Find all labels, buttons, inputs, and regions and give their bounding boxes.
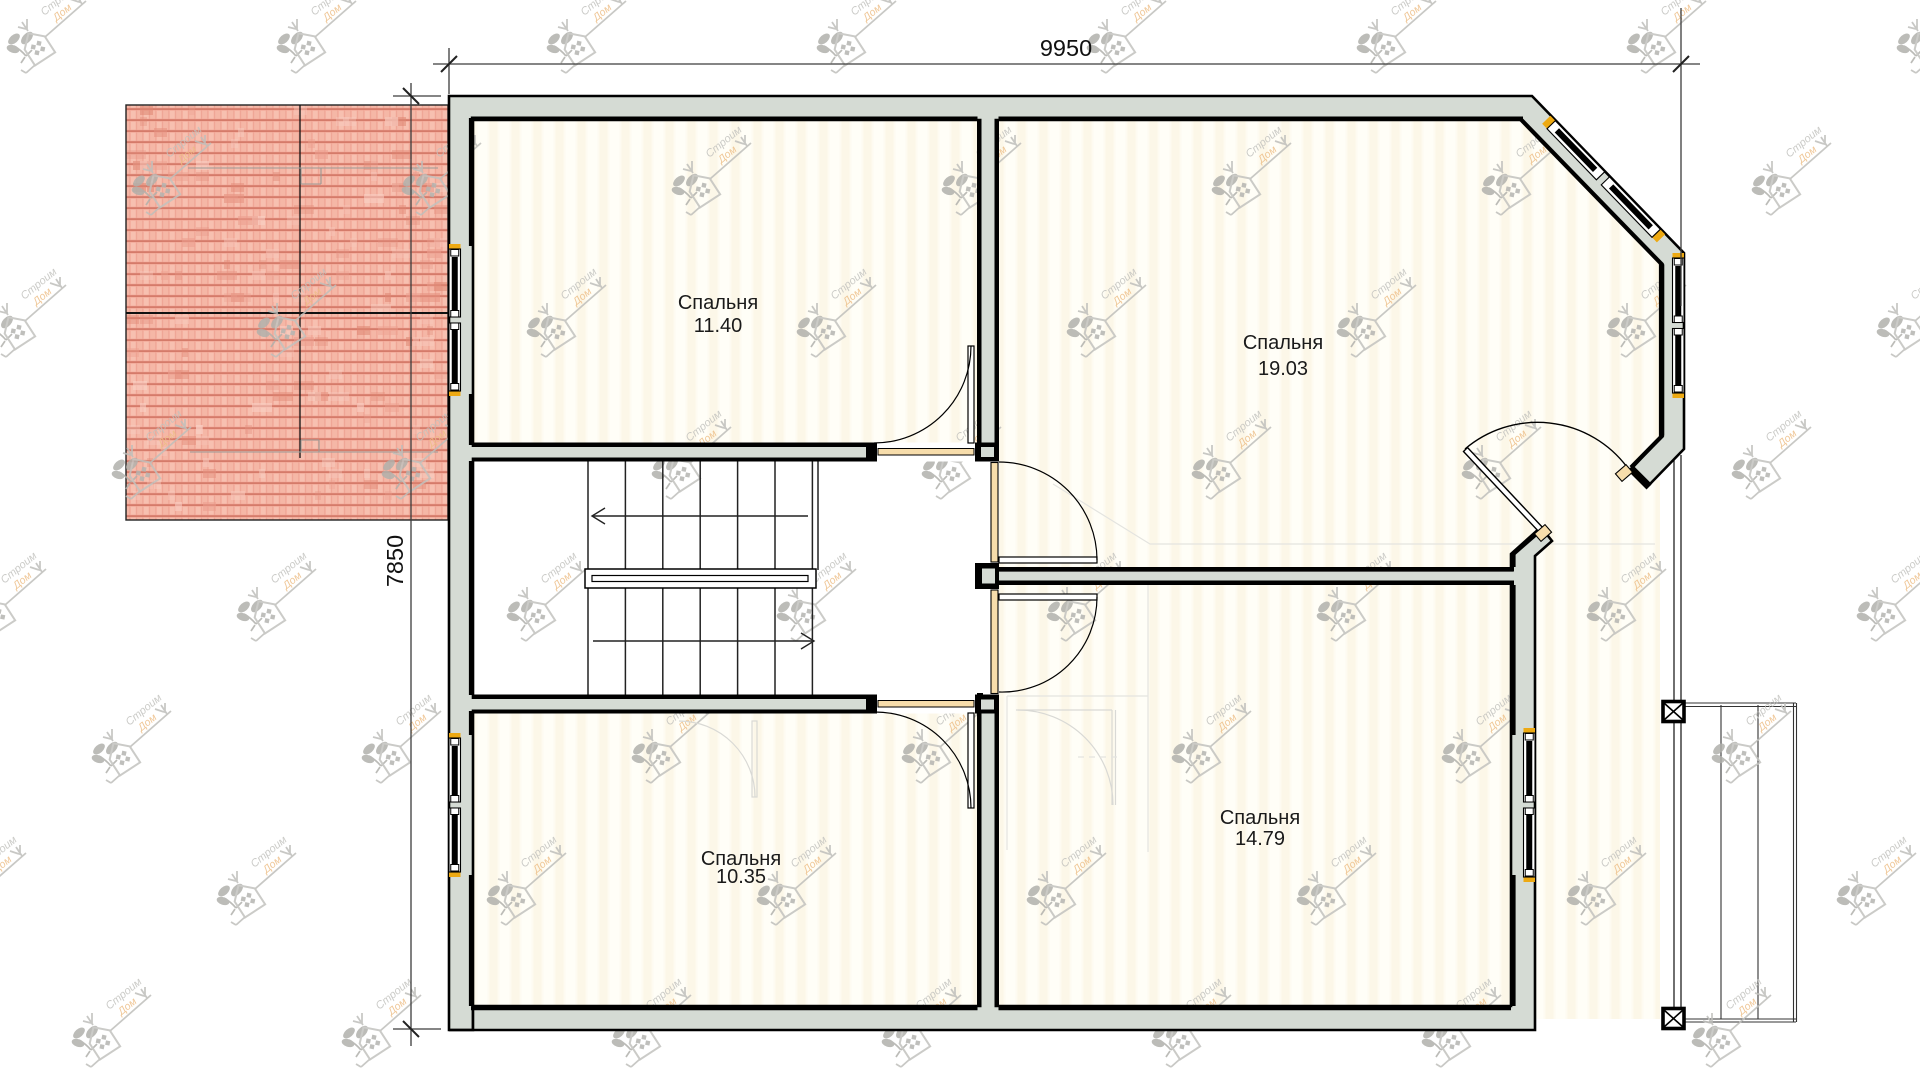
- svg-text:10.35: 10.35: [716, 866, 766, 888]
- svg-text:Спальня: Спальня: [1243, 332, 1323, 354]
- svg-text:19.03: 19.03: [1258, 358, 1308, 380]
- svg-text:9950: 9950: [1040, 35, 1092, 61]
- svg-text:7850: 7850: [382, 535, 408, 587]
- svg-text:14.79: 14.79: [1235, 828, 1285, 850]
- svg-text:11.40: 11.40: [694, 315, 743, 337]
- svg-text:Спальня: Спальня: [678, 292, 758, 314]
- svg-text:Спальня: Спальня: [1220, 807, 1300, 829]
